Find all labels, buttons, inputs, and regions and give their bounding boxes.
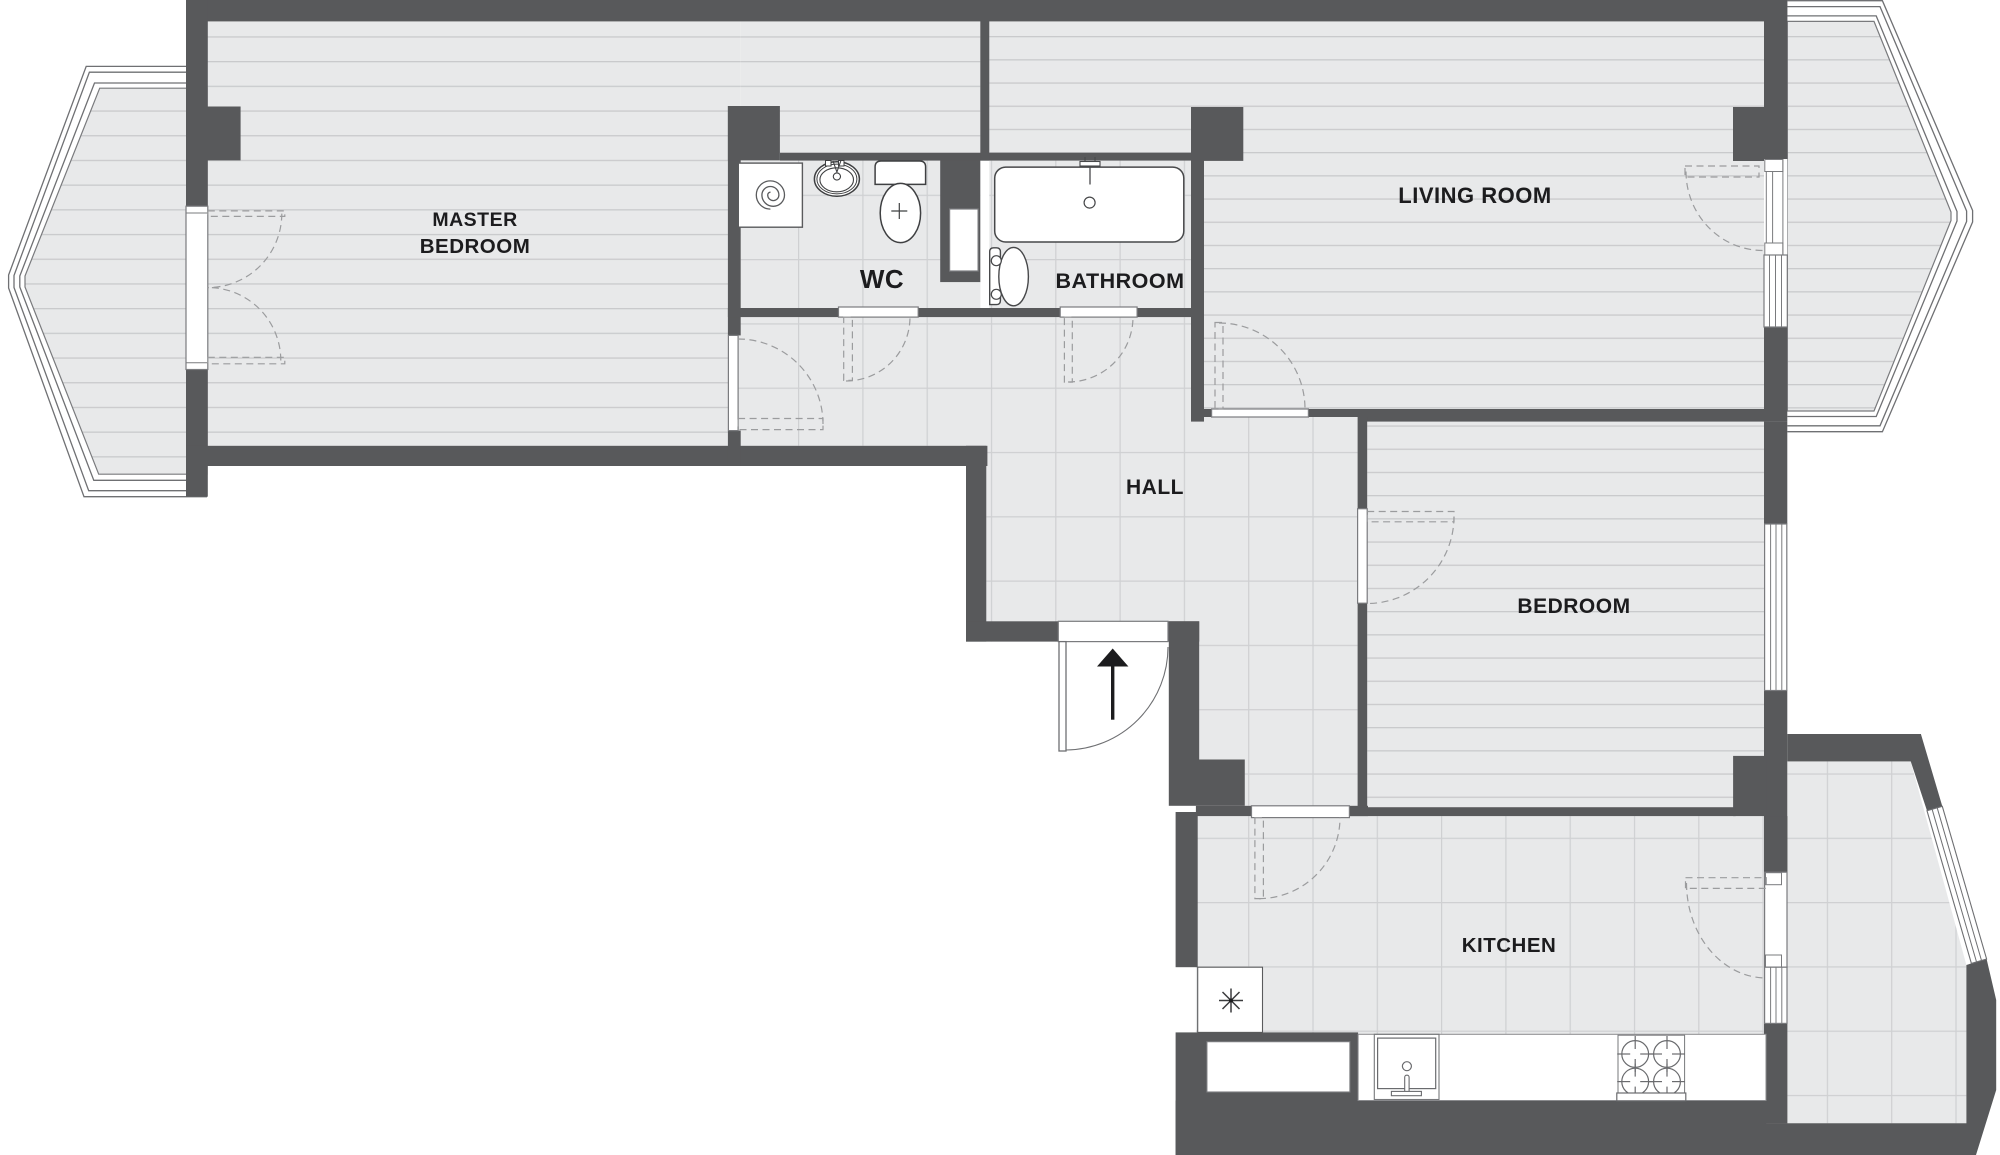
svg-text:BEDROOM: BEDROOM	[1517, 595, 1630, 618]
svg-text:MASTER: MASTER	[432, 209, 517, 231]
svg-text:WC: WC	[860, 264, 904, 294]
svg-text:BATHROOM: BATHROOM	[1055, 269, 1184, 293]
svg-text:HALL: HALL	[1126, 476, 1184, 499]
svg-text:BEDROOM: BEDROOM	[420, 235, 531, 258]
svg-text:KITCHEN: KITCHEN	[1462, 934, 1557, 957]
svg-text:LIVING ROOM: LIVING ROOM	[1398, 183, 1551, 208]
